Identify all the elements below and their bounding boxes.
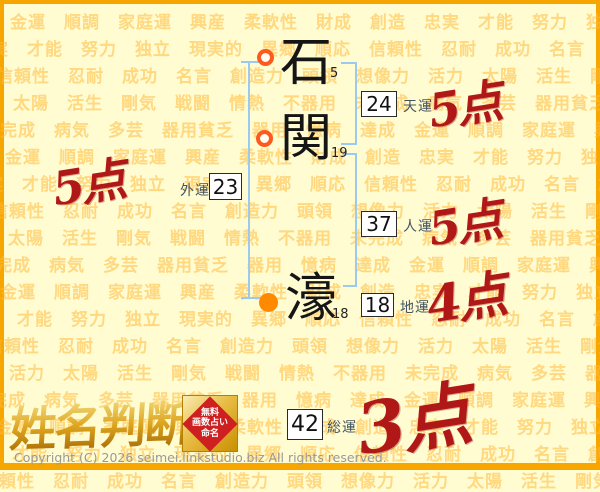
watermark-row: 金運 順調 家庭運 興産 柔軟性 財成 創造 忠実 才能 努力 独立 現実的 異… [10, 8, 600, 33]
surname-char-2: 関 [280, 113, 332, 165]
watermark-row: 信頼性 忍耐 成功 名言 創造力 頭領 想像力 活力 太陽 活生 剛気 戦闘 情… [0, 467, 600, 492]
tenun-bracket-top-tick [341, 62, 357, 64]
copyright-text: Copyright (C) 2026 seimei.linkstudio.biz… [14, 450, 387, 465]
surname-char-1-strokes: 5 [330, 66, 338, 81]
given-char-1-marker-icon [259, 293, 278, 312]
seimei-fortune-page: { "page": { "copyright": "Copyright (C) … [0, 0, 600, 470]
badge-line-3: 命名 [201, 429, 219, 439]
chiun-score: 4点 [421, 254, 508, 337]
souun-label: 総運 [327, 417, 357, 437]
gaiun-score: 5点 [47, 143, 126, 219]
given-char-1: 濠 [285, 273, 337, 325]
watermark-row: 活力 太陽 活生 剛気 戦闘 情熱 不器用 未完成 病気 多芸 器用貧乏 器用 … [0, 224, 600, 249]
tenun-score: 5点 [423, 65, 502, 141]
gaiun-value-box: 23 [209, 173, 242, 200]
gaiun-label: 外運 [180, 180, 210, 200]
jinun-score: 5点 [423, 183, 502, 259]
watermark-row: 活力 太陽 活生 剛気 戦闘 情熱 不器用 未完成 病気 多芸 器用貧乏 器用 … [9, 359, 600, 384]
souun-value-box: 42 [287, 409, 323, 440]
surname-char-1-marker-icon [257, 49, 274, 66]
site-logo: 姓名判断 [8, 385, 193, 460]
chiun-value-box: 18 [361, 293, 394, 317]
tenun-value-box: 24 [361, 91, 397, 117]
tenun-bracket-bottom-tick [341, 143, 357, 145]
surname-char-2-strokes: 19 [331, 146, 348, 161]
jinun-bracket-bottom-tick [343, 285, 357, 287]
surname-char-1: 石 [280, 37, 332, 89]
watermark-row: 信頼性 忍耐 成功 名言 創造力 頭領 想像力 活力 太陽 活生 剛気 戦闘 情… [0, 332, 600, 357]
gaiun-bracket-vertical [248, 62, 250, 299]
surname-char-2-marker-icon [256, 130, 273, 147]
given-char-1-strokes: 18 [332, 307, 349, 322]
badge-text: 無料 画数占い 命名 [183, 396, 237, 451]
badge-line-2: 画数占い [192, 418, 228, 428]
badge-line-1: 無料 [201, 408, 219, 418]
free-naming-badge: 無料 画数占い 命名 [182, 395, 238, 452]
jinun-bracket-vertical [355, 154, 357, 287]
jinun-value-box: 37 [361, 211, 397, 237]
tenun-bracket-vertical [355, 63, 357, 145]
